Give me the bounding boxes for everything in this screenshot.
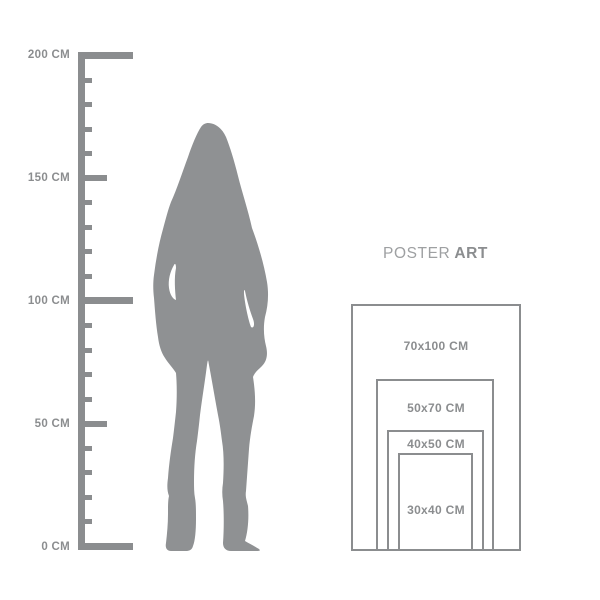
ruler-tick xyxy=(78,225,92,230)
ruler-tick xyxy=(78,519,92,524)
ruler-tick xyxy=(78,323,92,328)
ruler-tick xyxy=(78,102,92,107)
ruler-label-200: 200 CM xyxy=(10,48,70,63)
ruler-label-0: 0 CM xyxy=(10,540,70,555)
silhouette-body xyxy=(153,123,268,551)
ruler-tick xyxy=(78,470,92,475)
ruler-tick xyxy=(78,249,92,254)
title-word-poster: POSTER xyxy=(383,245,450,262)
poster-size-guide: 200 CM 150 CM 100 CM 50 CM 0 CM POSTERAR… xyxy=(0,0,600,600)
poster-size-label-30x40: 30x40 CM xyxy=(351,503,521,518)
ruler-tick xyxy=(78,127,92,132)
ruler-tick-200 xyxy=(78,52,133,59)
ruler-tick xyxy=(78,151,92,156)
ruler-tick-150 xyxy=(78,175,107,181)
ruler-tick xyxy=(78,348,92,353)
poster-rect-30x40 xyxy=(398,453,473,551)
ruler-tick xyxy=(78,446,92,451)
ruler-label-100: 100 CM xyxy=(10,294,70,309)
ruler-tick xyxy=(78,274,92,279)
poster-size-label-40x50: 40x50 CM xyxy=(351,437,521,452)
ruler-label-150: 150 CM xyxy=(10,171,70,186)
ruler-tick xyxy=(78,200,92,205)
ruler-tick-100 xyxy=(78,297,133,304)
woman-silhouette xyxy=(150,120,272,552)
ruler-tick xyxy=(78,78,92,83)
ruler-tick xyxy=(78,372,92,377)
ruler-tick xyxy=(78,397,92,402)
ruler-label-50: 50 CM xyxy=(10,417,70,432)
ruler-tick-50 xyxy=(78,421,107,427)
poster-size-label-70x100: 70x100 CM xyxy=(351,339,521,354)
poster-art-title: POSTERART xyxy=(383,245,488,263)
poster-size-label-50x70: 50x70 CM xyxy=(351,401,521,416)
ruler-tick-0 xyxy=(78,543,133,550)
title-word-art: ART xyxy=(454,245,488,262)
ruler-tick xyxy=(78,495,92,500)
